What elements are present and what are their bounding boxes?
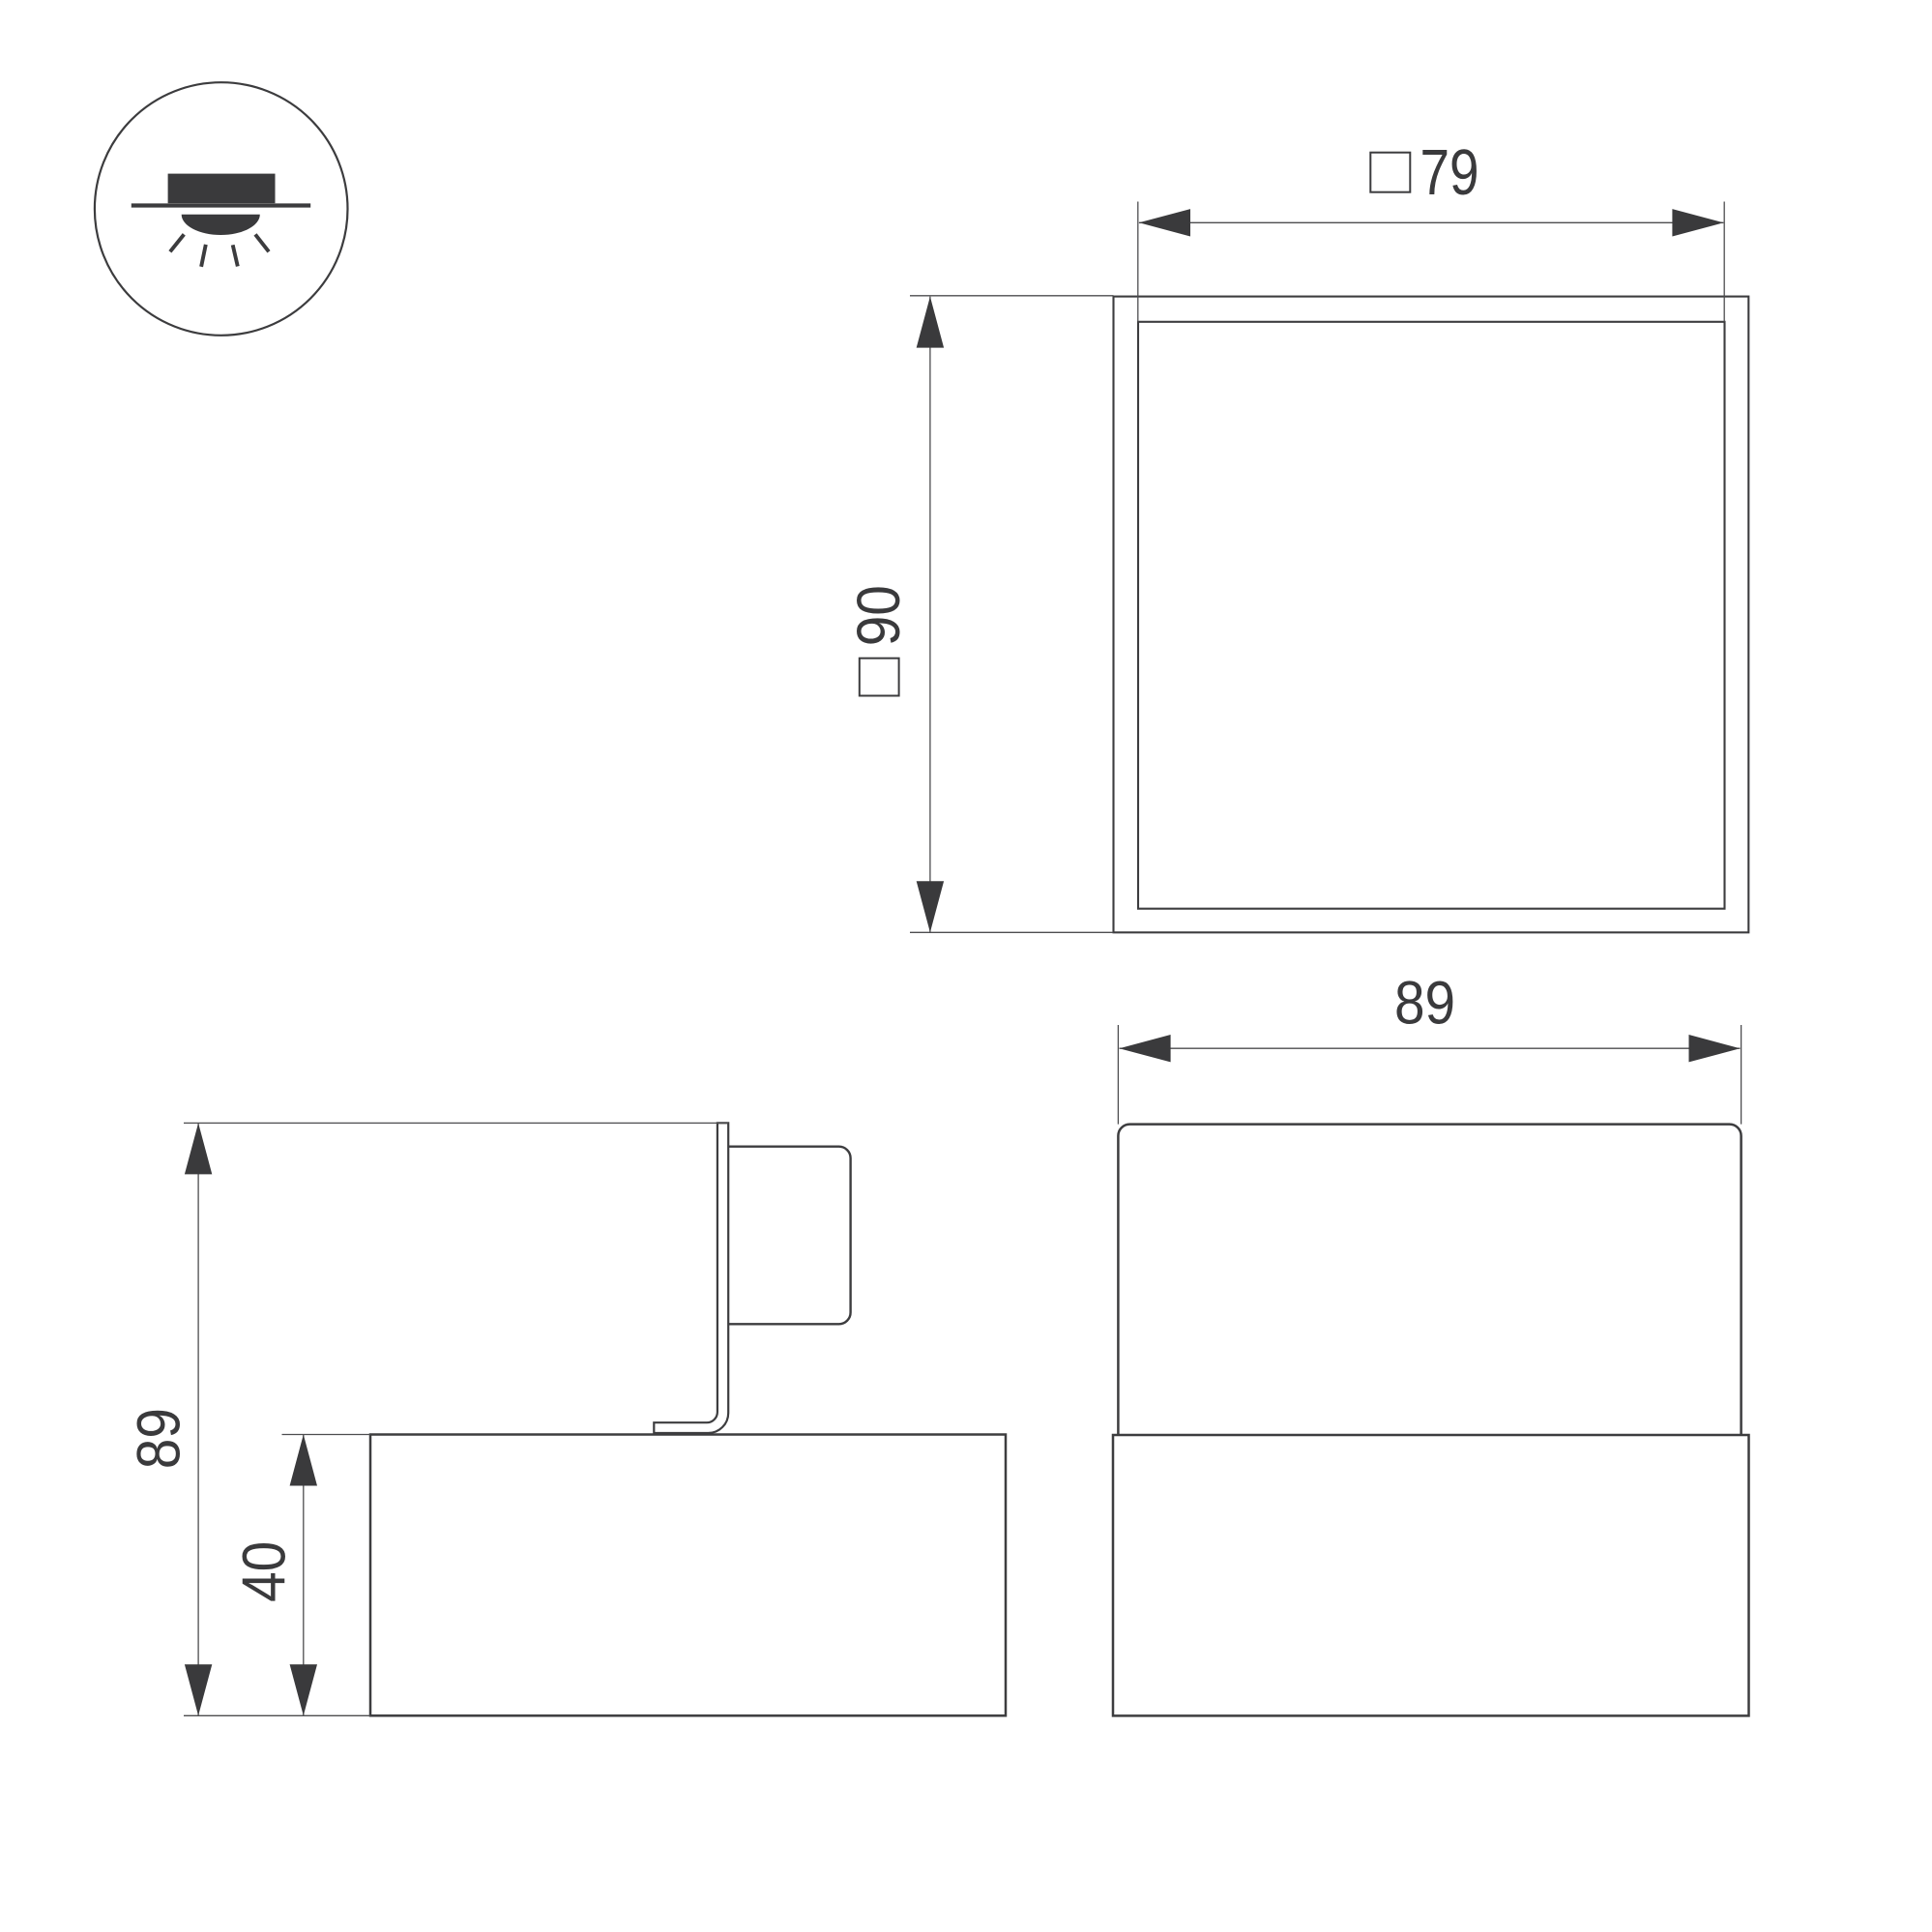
svg-text:79: 79 (1420, 136, 1479, 208)
svg-text:89: 89 (1394, 969, 1455, 1037)
svg-text:89: 89 (125, 1408, 192, 1469)
svg-text:40: 40 (230, 1541, 298, 1602)
svg-text:90: 90 (844, 585, 912, 646)
